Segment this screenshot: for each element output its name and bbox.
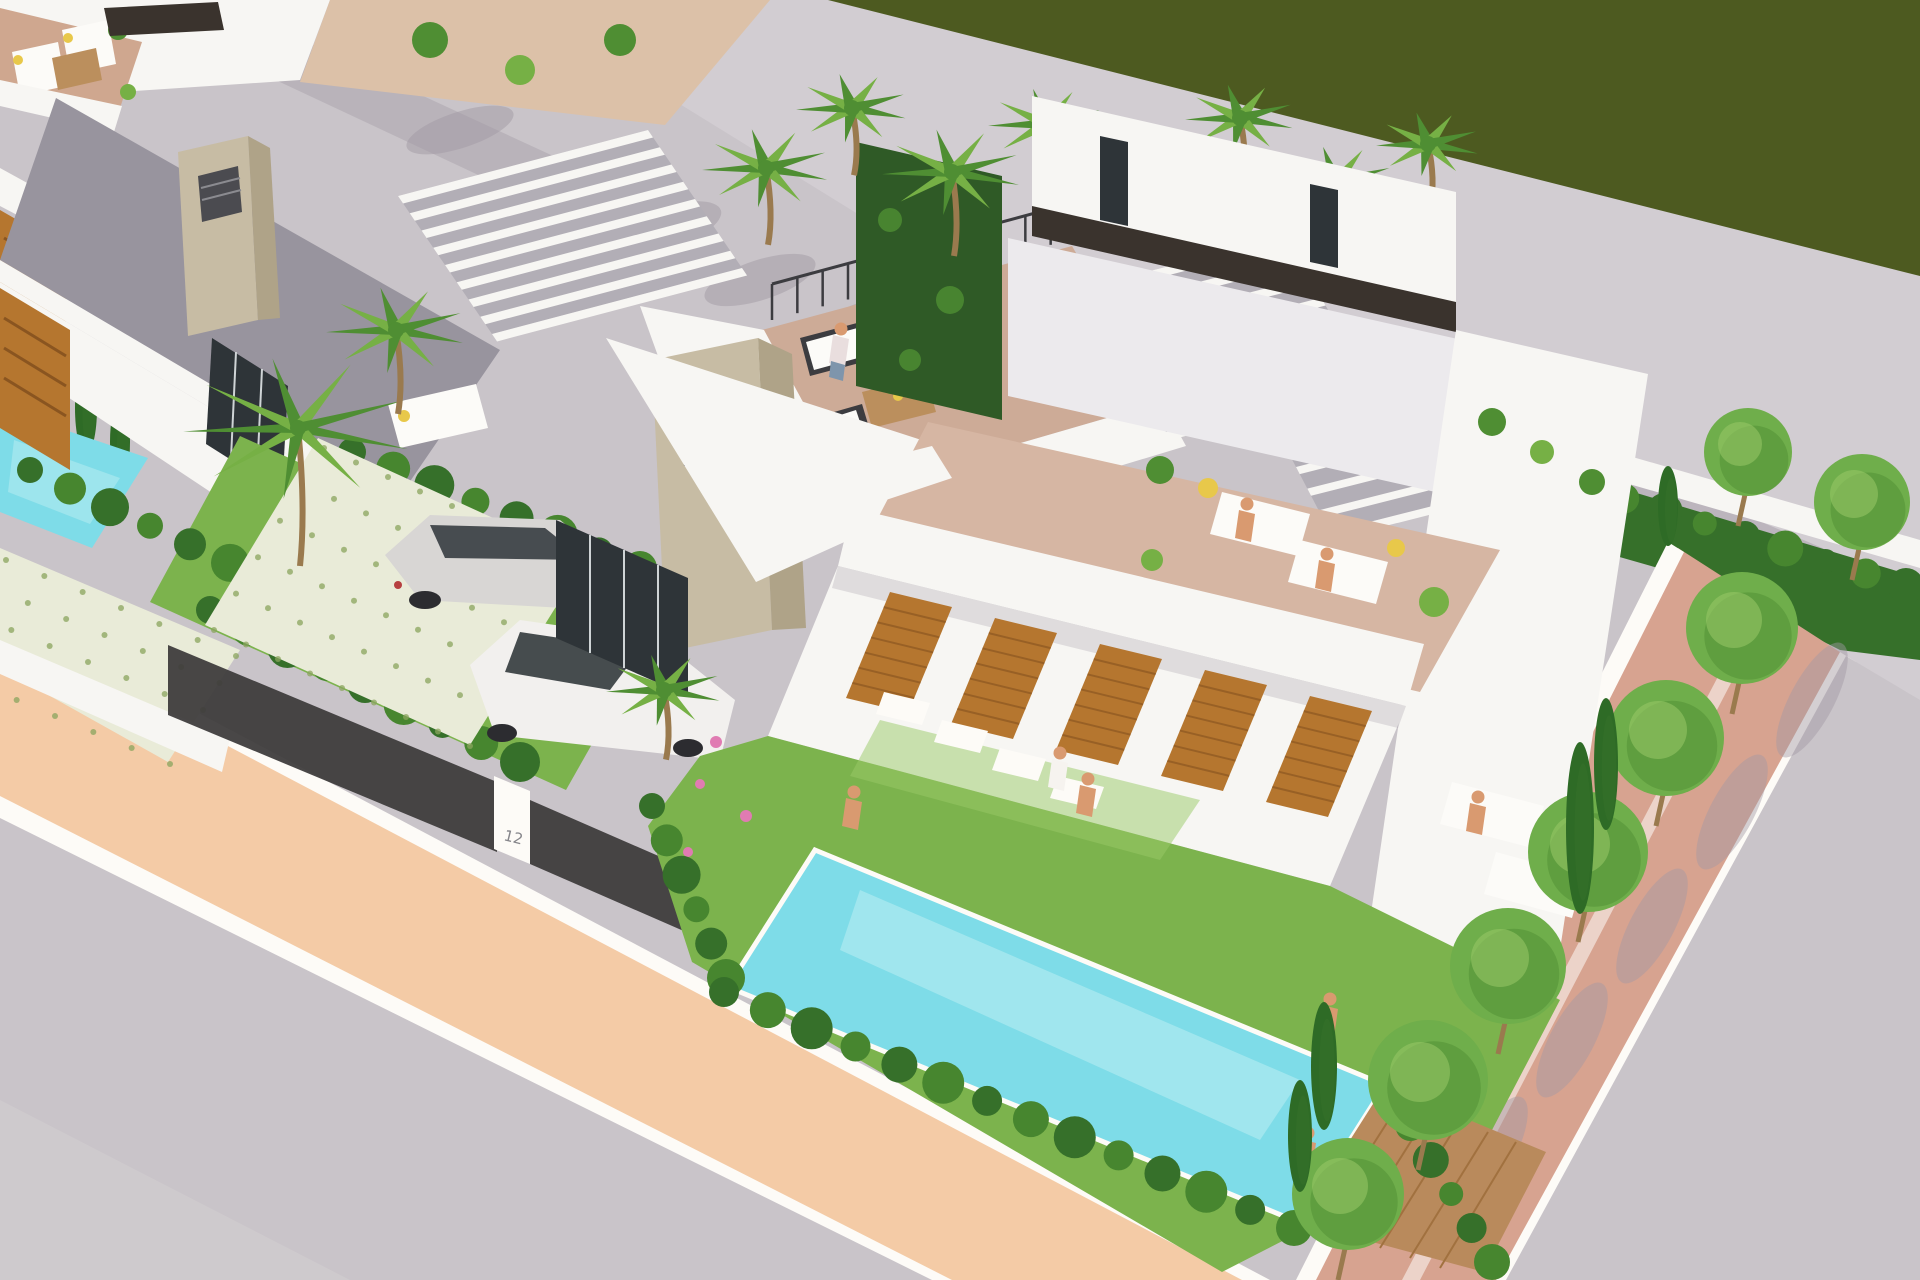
mosaic-dot [309,532,315,538]
person-head [1321,548,1334,561]
mosaic-dot [297,620,303,626]
render-canvas: 12 [0,0,1920,1280]
person-head [835,323,848,336]
mosaic-dot [3,557,9,563]
cypress-shade [1319,1019,1335,1121]
tree-light [1830,470,1878,518]
mosaic-dot [211,627,217,633]
mosaic-dot [395,525,401,531]
parasol [1198,478,1218,498]
hedge [1767,531,1803,567]
hedge [639,793,665,819]
mosaic-dot [467,743,473,749]
hedge [651,824,683,856]
mosaic-dot [319,583,325,589]
person-head [848,786,861,799]
ivy-texture [899,349,921,371]
mosaic-dot [90,729,96,735]
hedge [1235,1195,1265,1225]
hedge [1104,1140,1134,1170]
hedge [1730,521,1760,551]
mosaic-dot [255,554,261,560]
roof-trim-band [104,2,224,36]
sun-hat [13,55,23,65]
mosaic-dot [118,605,124,611]
mosaic-dot [385,474,391,480]
person-head [1054,747,1067,760]
mosaic-dot [339,685,345,691]
mosaic-dot [501,619,507,625]
potted-plant [1419,587,1449,617]
mosaic-dot [102,632,108,638]
hedge [683,896,709,922]
tail-light [394,581,402,589]
hedge [1439,1182,1463,1206]
car-wheel [409,591,441,609]
background-plant [604,24,636,56]
mosaic-dot [329,634,335,640]
hedge [1457,1213,1487,1243]
mosaic-dot [243,642,249,648]
mosaic-dot [341,547,347,553]
mosaic-dot [167,761,173,767]
hedge [841,1031,871,1061]
mosaic-dot [393,663,399,669]
sun-hat [63,33,73,43]
parasol [1387,539,1405,557]
palm-crown [944,164,960,180]
person-head [1241,498,1254,511]
mosaic-dot [307,671,313,677]
mosaic-dot [63,616,69,622]
mosaic-dot [14,697,20,703]
hedge [91,488,129,526]
palm-crown [758,160,774,176]
terrace-plant [1530,440,1554,464]
cypress-shade [1575,763,1592,901]
background-plant [505,55,535,85]
flowers [710,736,722,748]
mosaic-dot [85,659,91,665]
mosaic-dot [457,692,463,698]
villa-render-image: 12 [0,0,1920,1280]
flowers [695,779,705,789]
potted-plant [1141,549,1163,571]
hedge [174,528,206,560]
mosaic-dot [449,503,455,509]
hedge [1185,1171,1227,1213]
potted-plant [120,84,136,100]
flowers [740,810,752,822]
tree-light [1471,929,1529,987]
tree-light [1629,701,1687,759]
car-wheel [673,739,703,757]
gate-post [494,776,530,864]
mosaic-dot [371,700,377,706]
terrace-plant [1478,408,1506,436]
tree-light [1706,592,1762,648]
potted-plant [1146,456,1174,484]
cypress-shade [1296,1095,1310,1185]
palm-crown [1232,110,1248,126]
hedge [922,1062,964,1104]
tree-light [1390,1042,1450,1102]
hedge [1054,1116,1096,1158]
cypress-shade [1665,478,1677,542]
mosaic-dot [8,627,14,633]
ivy-texture [878,208,902,232]
hedge [1693,512,1717,536]
chimney [178,136,258,336]
palm-crown [388,322,404,338]
background-plant [412,22,448,58]
hedge [500,742,540,782]
mosaic-dot [331,496,337,502]
hedge [663,856,701,894]
villaC-window [1310,184,1338,268]
ivy-texture [936,286,964,314]
mosaic-dot [373,561,379,567]
mosaic-dot [363,510,369,516]
mosaic-dot [162,691,168,697]
mosaic-dot [233,653,239,659]
mosaic-dot [156,621,162,627]
hedge [695,928,727,960]
hedge [1144,1156,1180,1192]
hedge [709,977,739,1007]
mosaic-dot [140,648,146,654]
mosaic-dot [353,460,359,466]
mosaic-dot [417,489,423,495]
mosaic-dot [52,713,58,719]
tree-light [1312,1158,1368,1214]
palm-crown [656,682,672,698]
terrace-plant [1579,469,1605,495]
mosaic-dot [25,600,31,606]
hedge [1474,1244,1510,1280]
cypress-shade [1602,715,1616,821]
car-wheel [487,724,517,742]
person-head [1472,791,1485,804]
mosaic-dot [447,641,453,647]
palm-crown [1420,136,1436,152]
mosaic-dot [287,569,293,575]
mosaic-dot [435,729,441,735]
mosaic-dot [41,573,47,579]
hedge [791,1007,833,1049]
mosaic-dot [383,612,389,618]
mosaic-dot [277,518,283,524]
mosaic-dot [351,598,357,604]
tree-light [1718,422,1762,466]
hedge [54,473,86,505]
mosaic-dot [195,637,201,643]
hedge [881,1047,917,1083]
person-head [1082,773,1095,786]
mosaic-dot [265,605,271,611]
palm-crown [290,420,306,436]
mosaic-dot [233,591,239,597]
mosaic-dot [361,649,367,655]
hedge [1814,549,1838,573]
mosaic-dot [425,678,431,684]
hedge [137,513,163,539]
mosaic-dot [403,714,409,720]
mosaic-dot [275,656,281,662]
palm-crown [844,100,860,116]
flowers [683,847,693,857]
hedge [750,992,786,1028]
mosaic-dot [415,627,421,633]
hedge [1013,1101,1049,1137]
mosaic-dot [469,605,475,611]
hedge [972,1086,1002,1116]
mosaic-dot [129,745,135,751]
mosaic-dot [80,589,86,595]
hedge [17,457,43,483]
villaC-window [1100,136,1128,226]
mosaic-dot [123,675,129,681]
mosaic-dot [47,643,53,649]
chimney-grille-icon [198,166,242,222]
